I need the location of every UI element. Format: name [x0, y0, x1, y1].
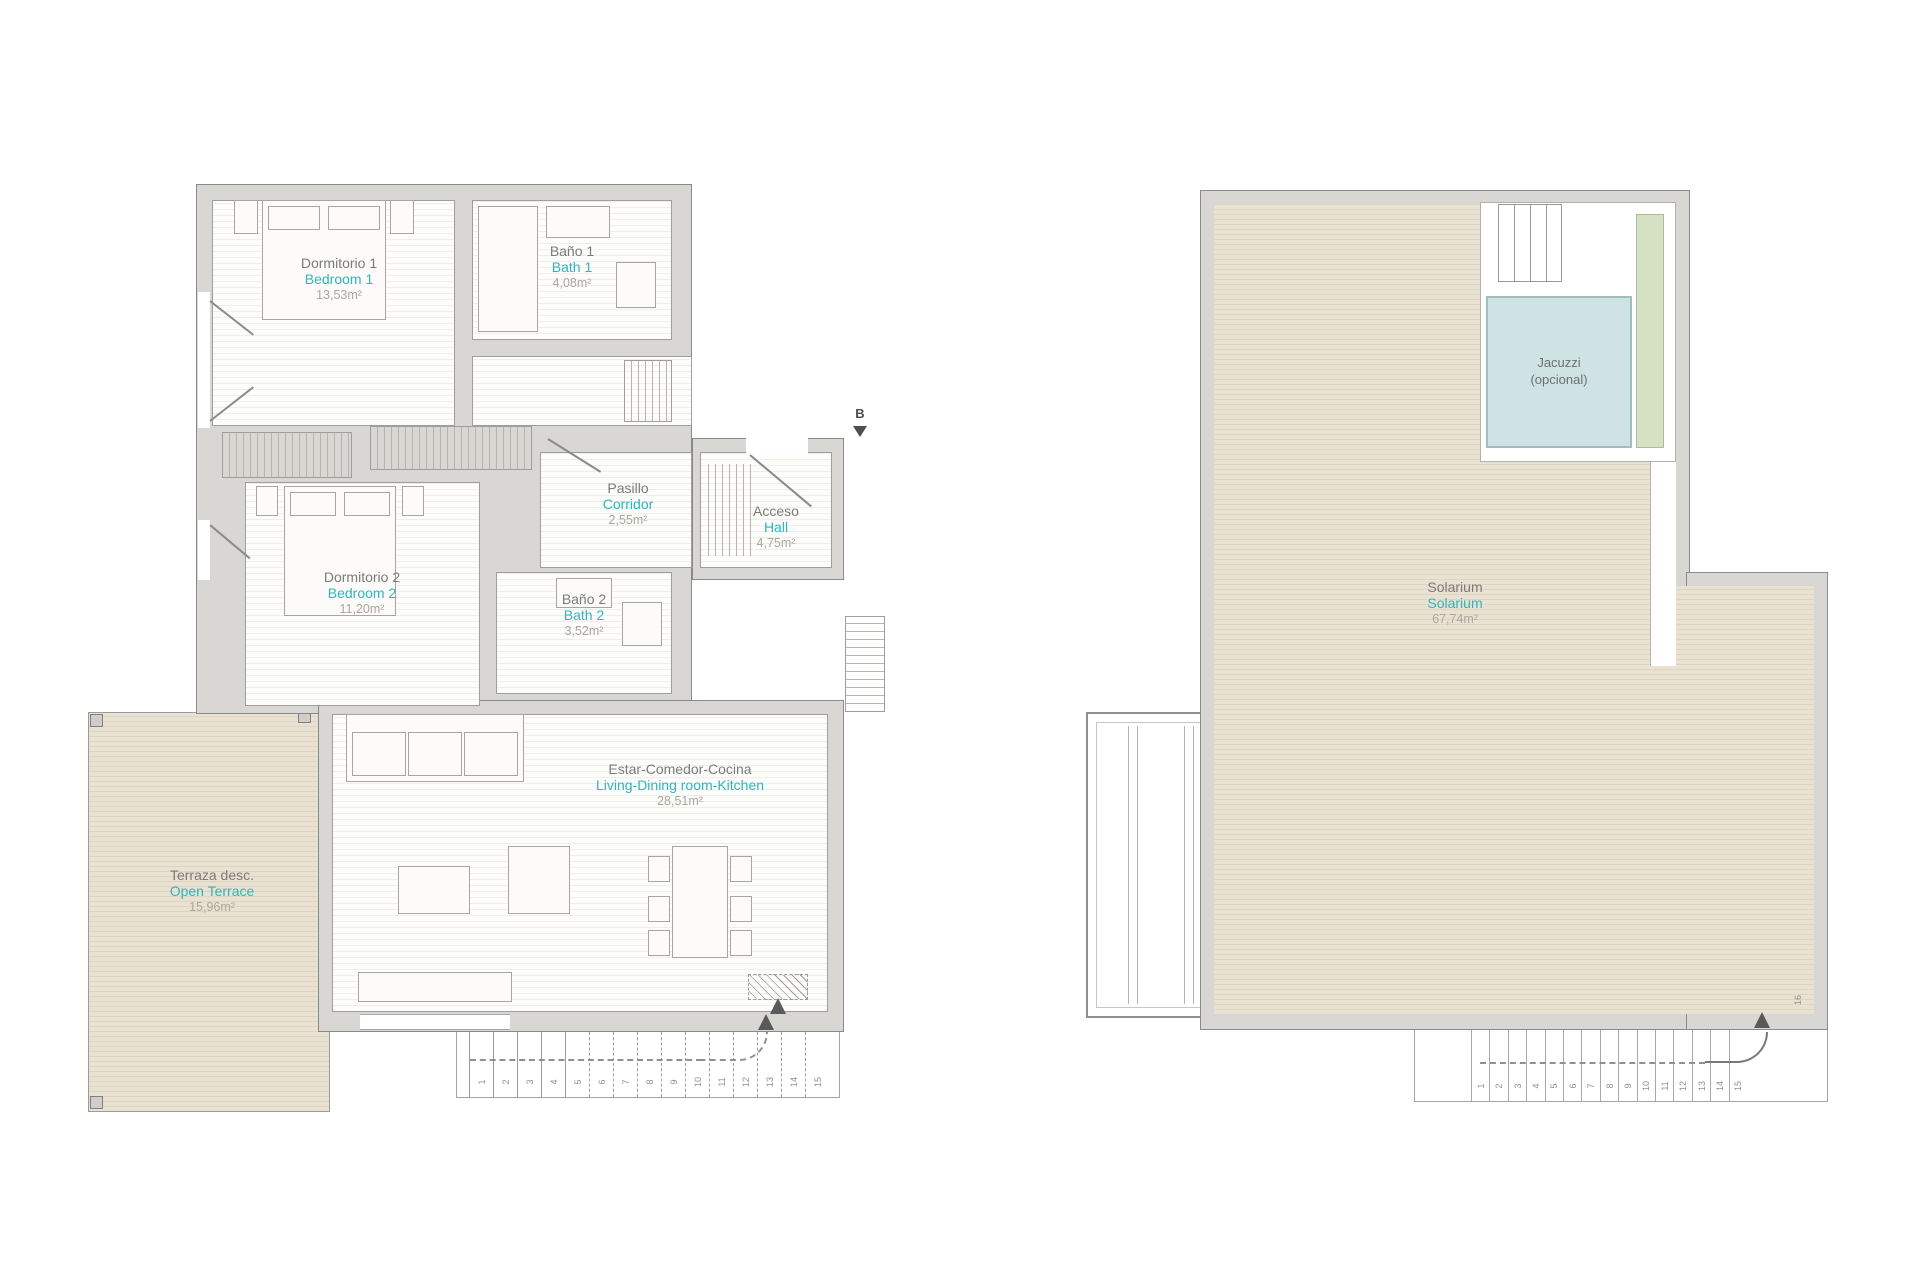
window-opening [360, 1014, 510, 1030]
stair-up-arrow-icon [770, 998, 786, 1014]
room-name-en: Bath 2 [504, 608, 664, 624]
nightstand [390, 200, 414, 234]
stair-step-number: 4 [549, 1079, 559, 1084]
stair-step-number: 4 [1531, 1083, 1541, 1088]
sofa-cushion [464, 732, 518, 776]
jacuzzi: Jacuzzi (opcional) [1486, 296, 1632, 448]
pillow [328, 206, 380, 230]
staircase-floor: 123456789101112131415 [456, 1032, 840, 1098]
stair-step-number: 8 [645, 1079, 655, 1084]
wardrobe-hatch [222, 432, 352, 478]
stair-step: 7 [613, 1032, 637, 1097]
room-area: 11,20m² [282, 602, 442, 616]
stair-step: 10 [1637, 1030, 1655, 1101]
stair-step-number: 5 [573, 1079, 583, 1084]
room-name-en: Living-Dining room-Kitchen [560, 778, 800, 794]
staircase-steps: 123456789101112131415 [469, 1032, 829, 1097]
sofa-cushion [352, 732, 406, 776]
room-area: 28,51m² [560, 794, 800, 808]
stair-step-number: 2 [1494, 1083, 1504, 1088]
stair-step: 3 [517, 1032, 541, 1097]
plan-apartment-floor: B [0, 0, 960, 1280]
nightstand [256, 486, 278, 516]
jacuzzi-label-line2: (opcional) [1530, 372, 1587, 389]
jacuzzi-label-line1: Jacuzzi [1530, 355, 1587, 372]
stair-step-number: 7 [1586, 1083, 1596, 1088]
top-step-number: 16 [1788, 990, 1808, 1008]
room-area: 4,08m² [492, 276, 652, 290]
room-name-en: Bedroom 1 [259, 272, 419, 288]
nightstand [234, 200, 258, 234]
stair-step: 14 [781, 1032, 805, 1097]
pillow [344, 492, 390, 516]
stair-step-number: 10 [693, 1077, 703, 1087]
room-area: 4,75m² [706, 536, 846, 550]
room-name-es: Pasillo [552, 481, 704, 497]
stair-up-arrow-icon [758, 1014, 774, 1030]
room-name-es: Dormitorio 1 [259, 256, 419, 272]
jacuzzi-label: Jacuzzi (opcional) [1530, 355, 1587, 389]
stair-step: 3 [1508, 1030, 1526, 1101]
stair-step: 8 [1600, 1030, 1618, 1101]
stair-step-number: 1 [477, 1079, 487, 1084]
floorplan-canvas: B [0, 0, 1920, 1280]
stair-step: 9 [1618, 1030, 1636, 1101]
chair [648, 930, 670, 956]
stair-path-line [1480, 1062, 1705, 1064]
stair-step: 9 [661, 1032, 685, 1097]
stair-step: 4 [541, 1032, 565, 1097]
room-name-es: Estar-Comedor-Cocina [560, 762, 800, 778]
room-name-en: Corridor [552, 497, 704, 513]
stair-up-arrow-icon [1754, 1012, 1770, 1028]
stair-path-line [470, 1059, 702, 1061]
stair-step-number: 12 [741, 1077, 751, 1087]
roof-access-sliver [1650, 462, 1676, 666]
room-name-en: Solarium [1375, 596, 1535, 612]
terrace-column [90, 714, 103, 727]
stair-step: 8 [637, 1032, 661, 1097]
pergola-beam [1184, 726, 1194, 1004]
entry-door-opening [746, 438, 808, 454]
chair [730, 856, 752, 882]
stair-step: 5 [1545, 1030, 1563, 1101]
room-name-en: Bath 1 [492, 260, 652, 276]
stair-step: 6 [1563, 1030, 1581, 1101]
room-label-terrace: Terraza desc. Open Terrace 15,96m² [132, 868, 292, 914]
sofa-cushion [408, 732, 462, 776]
stair-step-number: 5 [1549, 1083, 1559, 1088]
stair-step-number: 2 [501, 1079, 511, 1084]
dining-table [672, 846, 728, 958]
exterior-stair-flight-hatch [845, 616, 885, 712]
stair-step-number: 14 [1715, 1081, 1725, 1091]
stair-step-number: 12 [1678, 1081, 1688, 1091]
chair [648, 896, 670, 922]
terrace-column [90, 1096, 103, 1109]
stair-step-number: 7 [621, 1079, 631, 1084]
room-area: 3,52m² [504, 624, 664, 638]
stair-step-number: 1 [1476, 1083, 1486, 1088]
stair-step-number: 13 [1697, 1081, 1707, 1091]
stair-step-number: 6 [1568, 1083, 1578, 1088]
stair-step: 1 [469, 1032, 493, 1097]
pillow [268, 206, 320, 230]
wardrobe-hatch [370, 426, 532, 470]
chair [730, 930, 752, 956]
window-opening [198, 520, 210, 580]
nightstand [402, 486, 424, 516]
room-name-es: Baño 2 [504, 592, 664, 608]
pillow [290, 492, 336, 516]
stair-step: 4 [1526, 1030, 1544, 1101]
stair-step-number: 9 [1623, 1083, 1633, 1088]
stair-step-number: 15 [1733, 1081, 1743, 1091]
room-area: 13,53m² [259, 288, 419, 302]
stair-step-number: 11 [717, 1077, 727, 1086]
stair-step-number: 15 [813, 1077, 823, 1087]
solarium-deck-wing [1672, 586, 1814, 1014]
armchair [508, 846, 570, 914]
step-number-16: 16 [1793, 995, 1803, 1005]
stair-step: 5 [565, 1032, 589, 1097]
stair-arrival-hatch [748, 974, 808, 1000]
stair-step-number: 9 [669, 1079, 679, 1084]
room-label-bedroom2: Dormitorio 2 Bedroom 2 11,20m² [282, 570, 442, 616]
stair-landing-hatch [1498, 204, 1562, 282]
linen-closet-hatch [624, 360, 672, 422]
room-name-en: Open Terrace [132, 884, 292, 900]
room-label-hall: Acceso Hall 4,75m² [706, 504, 846, 550]
stair-step: 2 [1489, 1030, 1507, 1101]
stair-step-number: 3 [1513, 1083, 1523, 1088]
entrance-marker: B [846, 406, 874, 421]
stair-step-number: 10 [1641, 1081, 1651, 1091]
room-label-bath1: Baño 1 Bath 1 4,08m² [492, 244, 652, 290]
window-opening [198, 292, 210, 428]
room-area: 15,96m² [132, 900, 292, 914]
stair-step-number: 6 [597, 1079, 607, 1084]
room-name-es: Baño 1 [492, 244, 652, 260]
chair [648, 856, 670, 882]
stair-step-number: 8 [1605, 1083, 1615, 1088]
entrance-arrow-icon [853, 426, 867, 437]
room-name-es: Solarium [1375, 580, 1535, 596]
stair-step-number: 11 [1660, 1081, 1670, 1090]
chair [730, 896, 752, 922]
room-label-bath2: Baño 2 Bath 2 3,52m² [504, 592, 664, 638]
stair-step-number: 13 [765, 1077, 775, 1087]
stair-step-number: 3 [525, 1079, 535, 1084]
room-area: 67,74m² [1375, 612, 1535, 626]
room-name-en: Hall [706, 520, 846, 536]
room-name-es: Dormitorio 2 [282, 570, 442, 586]
room-label-living: Estar-Comedor-Cocina Living-Dining room-… [560, 762, 800, 808]
stair-step: 15 [805, 1032, 829, 1097]
room-area: 2,55m² [552, 513, 704, 527]
stair-step: 2 [493, 1032, 517, 1097]
room-name-en: Bedroom 2 [282, 586, 442, 602]
room-label-bedroom1: Dormitorio 1 Bedroom 1 13,53m² [259, 256, 419, 302]
stair-step: 11 [1655, 1030, 1673, 1101]
stair-step-number: 14 [789, 1077, 799, 1087]
coffee-table [398, 866, 470, 914]
room-label-corridor: Pasillo Corridor 2,55m² [552, 481, 704, 527]
washbasin [546, 206, 610, 238]
room-name-es: Acceso [706, 504, 846, 520]
plan-solarium: Jacuzzi (opcional) 16 Solarium Solarium … [960, 0, 1920, 1280]
pergola-beam [1128, 726, 1138, 1004]
room-name-es: Terraza desc. [132, 868, 292, 884]
stair-step: 12 [1673, 1030, 1691, 1101]
room-label-solarium: Solarium Solarium 67,74m² [1375, 580, 1535, 626]
stair-step: 1 [1471, 1030, 1489, 1101]
planter-strip [1636, 214, 1664, 448]
stair-step: 6 [589, 1032, 613, 1097]
sideboard [358, 972, 512, 1002]
stair-step: 7 [1581, 1030, 1599, 1101]
